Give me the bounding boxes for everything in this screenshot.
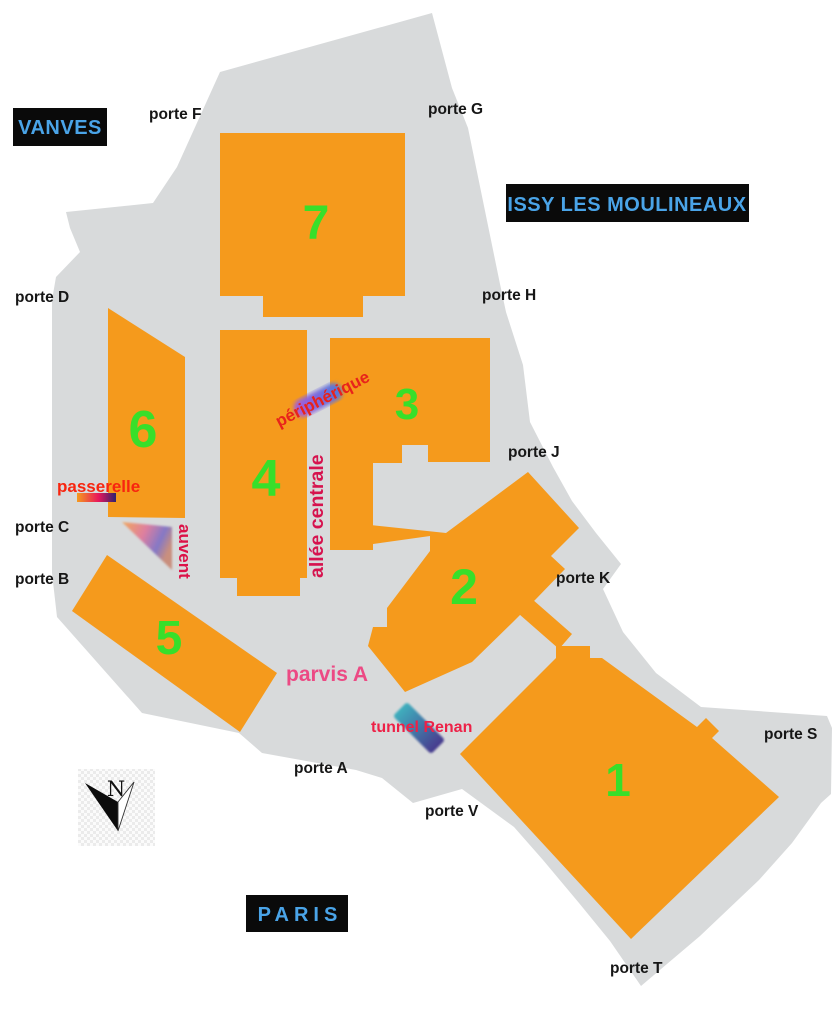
vanves-label: VANVES — [18, 117, 102, 139]
hall-7-number: 7 — [303, 197, 330, 250]
allee-centrale-label: allée centrale — [306, 454, 328, 578]
gate-label-porte-s: porte S — [764, 726, 817, 743]
gate-label-porte-f: porte F — [149, 106, 202, 123]
hall-2-number: 2 — [450, 559, 478, 615]
hall-5-number: 5 — [156, 612, 183, 665]
gate-label-porte-b: porte B — [15, 571, 69, 588]
parvis-a-label: parvis A — [286, 663, 368, 686]
issy-les-moulineaux-label: ISSY LES MOULINEAUX — [507, 194, 746, 216]
tunnel-renan-label: tunnel Renan — [371, 719, 472, 736]
gate-label-porte-k: porte K — [556, 570, 611, 587]
gate-label-porte-d: porte D — [15, 289, 69, 306]
gate-label-porte-j: porte J — [508, 444, 560, 461]
gate-label-porte-c: porte C — [15, 519, 69, 536]
site-map-page: 7 6 4 3 2 5 1 passerelle périphérique al… — [0, 0, 833, 1024]
hall-3-number: 3 — [395, 380, 419, 429]
gate-label-porte-a: porte A — [294, 760, 348, 777]
paris-label: PARIS — [258, 904, 343, 926]
map-canvas: 7 6 4 3 2 5 1 passerelle périphérique al… — [0, 0, 833, 1024]
gate-label-porte-g: porte G — [428, 101, 483, 118]
gate-label-porte-h: porte H — [482, 287, 536, 304]
hall-6-number: 6 — [129, 401, 158, 459]
passerelle-label: passerelle — [57, 477, 140, 496]
hall-1-number: 1 — [605, 754, 631, 806]
gate-label-porte-v: porte V — [425, 803, 479, 820]
hall-4-number: 4 — [252, 450, 281, 508]
compass: N — [78, 769, 155, 846]
gate-label-porte-t: porte T — [610, 960, 663, 977]
auvent-label: auvent — [175, 524, 194, 579]
